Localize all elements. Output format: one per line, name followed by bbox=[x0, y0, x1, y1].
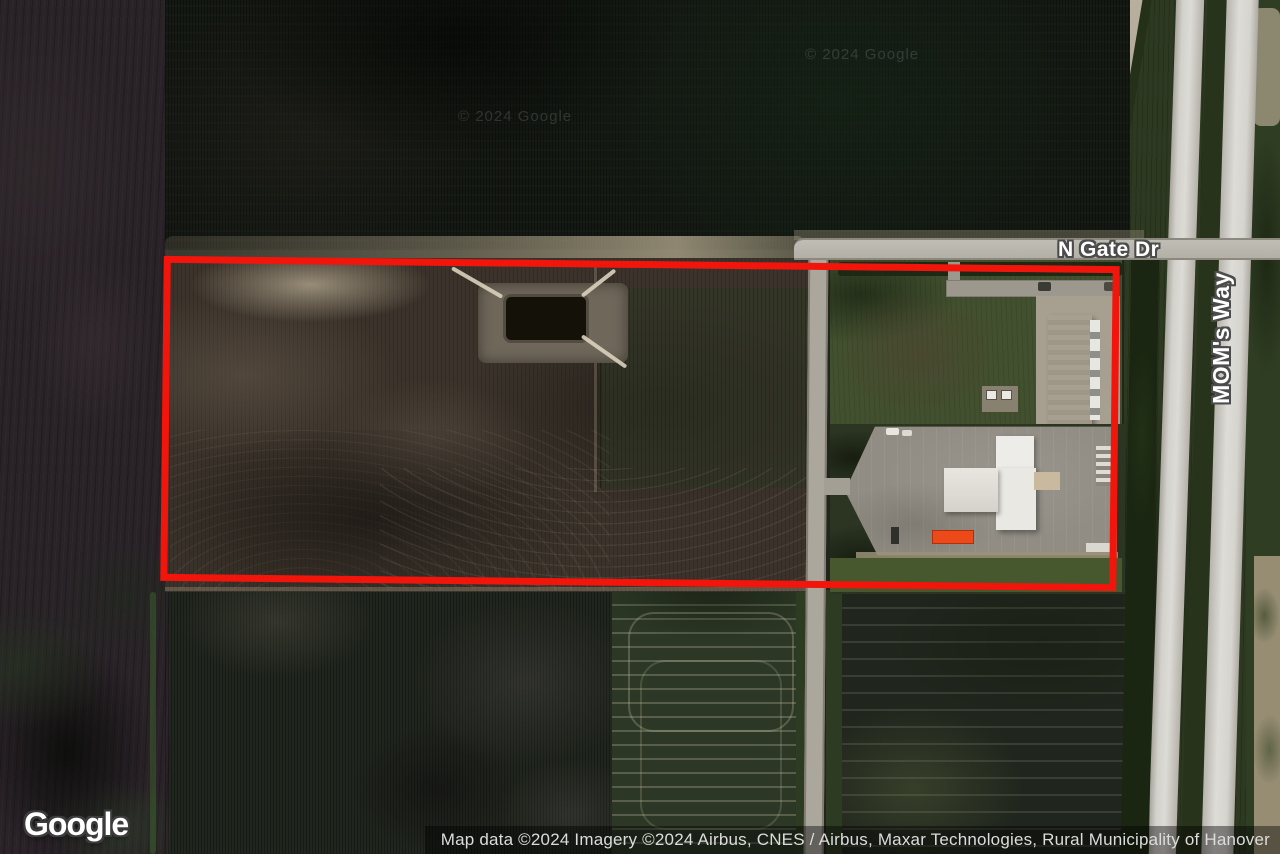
plow-contour-ring bbox=[640, 660, 782, 830]
field-green-seam bbox=[150, 592, 156, 854]
field-west-column bbox=[0, 0, 170, 854]
imagery-watermark: © 2024 Google bbox=[458, 108, 572, 125]
imagery-watermark: © 2024 Google bbox=[805, 46, 919, 63]
road-label-n-gate-dr: N Gate Dr bbox=[1058, 238, 1159, 262]
field-north-dark bbox=[165, 0, 1130, 250]
field-south-dark bbox=[165, 590, 615, 854]
road-label-moms-way: MOM's Way bbox=[1208, 243, 1236, 433]
field-south-green bbox=[842, 590, 1128, 854]
parcel-south-boundary-line bbox=[165, 587, 820, 591]
attribution-bar: Map data ©2024 Imagery ©2024 Airbus, CNE… bbox=[425, 826, 1280, 854]
dirt-patch-southeast bbox=[1254, 556, 1280, 854]
map-viewport[interactable]: © 2024 Google © 2024 Google N Gate Dr MO… bbox=[0, 0, 1280, 854]
attribution-text: Map data ©2024 Imagery ©2024 Airbus, CNE… bbox=[441, 830, 1270, 850]
parcel-boundary-overlay bbox=[160, 256, 1119, 591]
google-logo[interactable]: Google bbox=[24, 806, 128, 843]
road-shoulder-east bbox=[826, 590, 842, 854]
